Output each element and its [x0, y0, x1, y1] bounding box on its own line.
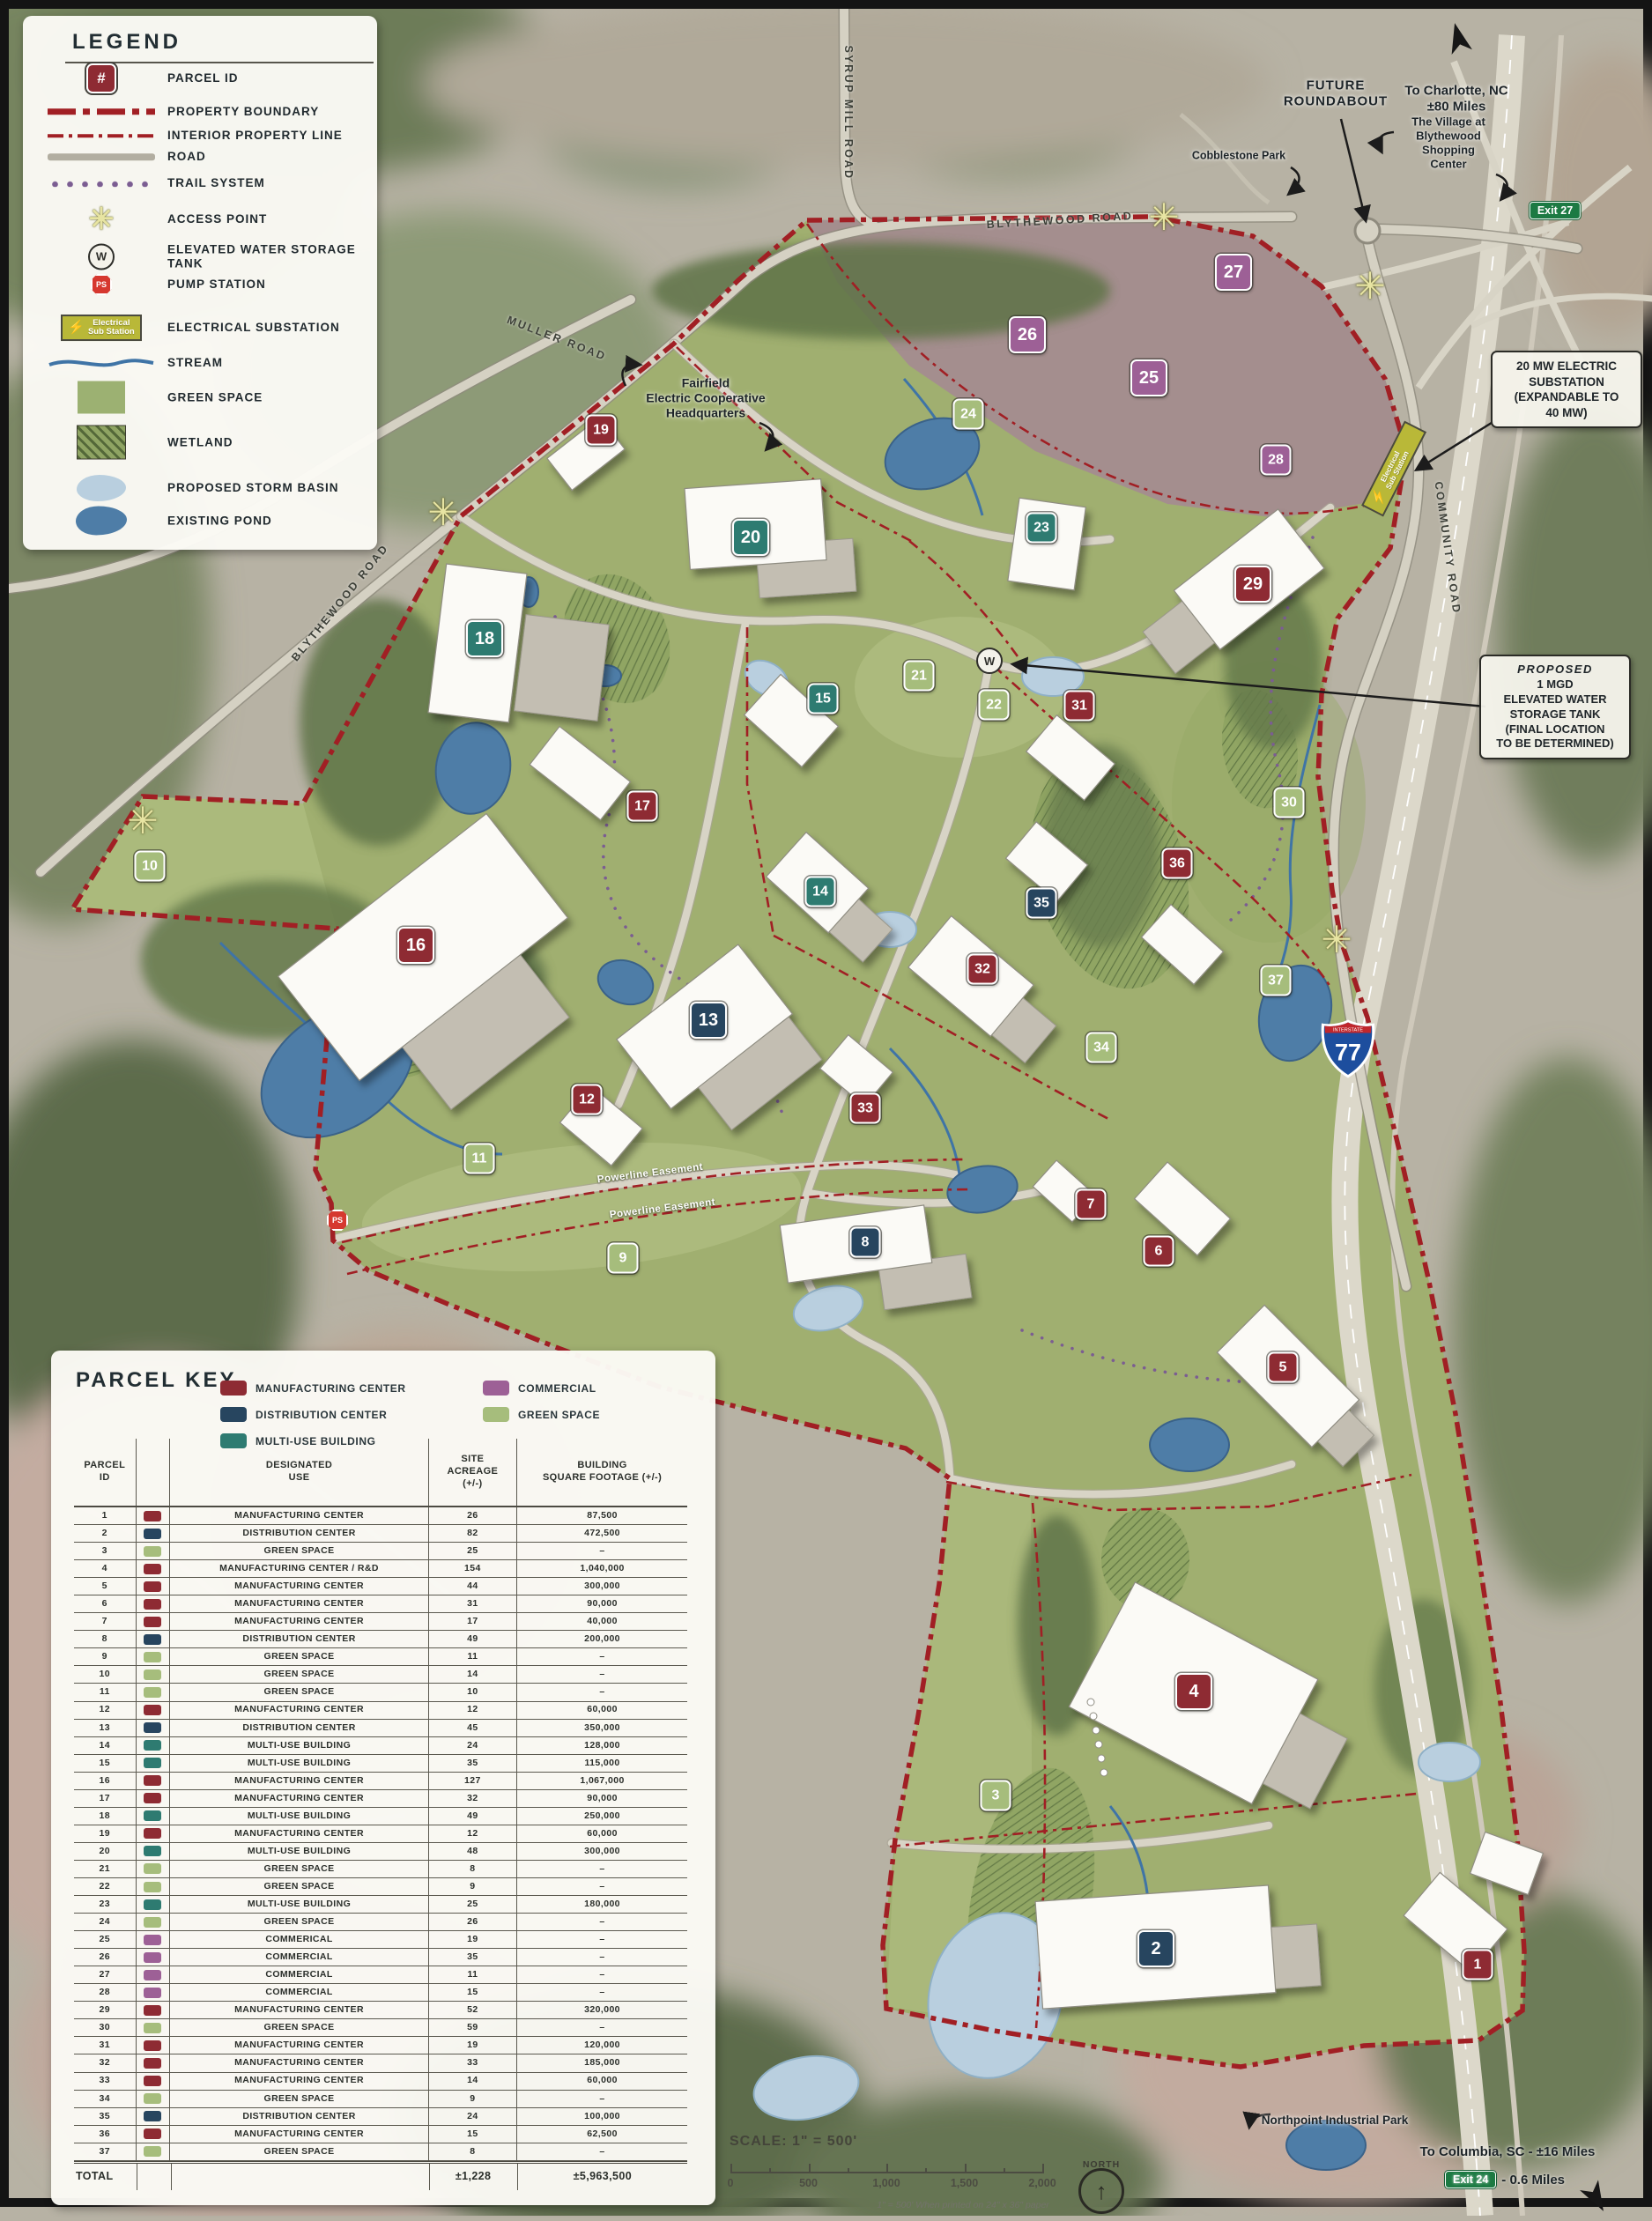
- parcel-row-31: 31MANUFACTURING CENTER19120,000: [74, 2037, 687, 2054]
- table-cell: COMMERCIAL: [170, 1966, 428, 1983]
- legend-item-label: WETLAND: [167, 435, 357, 449]
- table-cell: DESIGNATED USE: [170, 1439, 428, 1506]
- legend-item-wetland-swatch: WETLAND: [35, 426, 370, 460]
- table-cell: 7: [74, 1613, 137, 1630]
- table-cell: 4: [74, 1560, 137, 1577]
- table-header-row: PARCEL IDDESIGNATED USESITE ACREAGE (+/-…: [74, 1439, 687, 1507]
- table-cell: 11: [74, 1684, 137, 1700]
- table-cell: –: [517, 1543, 687, 1559]
- use-type-manufacturing: MANUFACTURING CENTER: [220, 1381, 406, 1396]
- table-cell: MULTI-USE BUILDING: [170, 1737, 428, 1754]
- table-cell: 26: [429, 1507, 517, 1524]
- table-cell: 40,000: [517, 1613, 687, 1630]
- table-cell: –: [517, 1949, 687, 1966]
- table-cell: MANUFACTURING CENTER: [170, 1613, 428, 1630]
- table-cell: 44: [429, 1578, 517, 1595]
- parcel-key-panel: PARCEL KEY MANUFACTURING CENTERDISTRIBUT…: [51, 1351, 715, 2205]
- legend-item-label: ROAD: [167, 150, 357, 164]
- table-cell: 52: [429, 2002, 517, 2018]
- parcel-row-16: 16MANUFACTURING CENTER1271,067,000: [74, 1773, 687, 1790]
- site-master-plan: { "legend": { "title": "LEGEND", "parcel…: [0, 0, 1652, 2207]
- parcel-row-33: 33MANUFACTURING CENTER1460,000: [74, 2073, 687, 2091]
- table-cell: MANUFACTURING CENTER: [170, 2002, 428, 2018]
- table-cell: –: [517, 1914, 687, 1930]
- table-cell: 29: [74, 2002, 137, 2018]
- table-cell: MANUFACTURING CENTER: [170, 1507, 428, 1524]
- table-cell: 19: [429, 1931, 517, 1948]
- table-cell: 127: [429, 1773, 517, 1789]
- village-arrow-left: [1379, 132, 1394, 152]
- table-cell: 33: [74, 2073, 137, 2090]
- table-cell: 62,500: [517, 2126, 687, 2143]
- parcel-row-3: 3GREEN SPACE25–: [74, 1543, 687, 1560]
- legend-item-label: ELEVATED WATER STORAGE TANK: [167, 242, 357, 270]
- table-cell: [137, 1966, 171, 1983]
- table-cell: 36: [74, 2126, 137, 2143]
- table-cell: 87,500: [517, 1507, 687, 1524]
- table-cell: 12: [429, 1825, 517, 1842]
- table-cell: 17: [74, 1790, 137, 1807]
- table-cell: 34: [74, 2091, 137, 2107]
- table-cell: 23: [74, 1896, 137, 1913]
- table-cell: [137, 1984, 171, 2001]
- table-cell: 19: [429, 2037, 517, 2054]
- table-cell: 120,000: [517, 2037, 687, 2054]
- legend-item-label: ACCESS POINT: [167, 212, 357, 226]
- table-cell: 24: [429, 1737, 517, 1754]
- table-cell: [137, 1525, 171, 1542]
- table-cell: COMMERCIAL: [170, 1949, 428, 1966]
- table-cell: 30: [74, 2019, 137, 2036]
- legend-item-label: ELECTRICAL SUBSTATION: [167, 321, 357, 335]
- table-cell: [137, 2108, 171, 2125]
- cobblestone-arrow: [1289, 167, 1300, 194]
- table-cell: 8: [429, 2143, 517, 2160]
- legend-item-electrical-substation-symbol: ⚡ElectricalSub StationELECTRICAL SUBSTAT…: [35, 315, 370, 341]
- table-cell: [137, 1684, 171, 1700]
- table-cell: 11: [429, 1648, 517, 1665]
- table-cell: [137, 1773, 171, 1789]
- table-cell: [137, 1613, 171, 1630]
- table-cell: –: [517, 2091, 687, 2107]
- table-cell: GREEN SPACE: [170, 2143, 428, 2160]
- parcel-row-37: 37GREEN SPACE8–: [74, 2143, 687, 2161]
- table-cell: 19: [74, 1825, 137, 1842]
- table-cell: 26: [74, 1949, 137, 1966]
- table-cell: [137, 1914, 171, 1930]
- table-cell: [137, 2019, 171, 2036]
- table-cell: DISTRIBUTION CENTER: [170, 1525, 428, 1542]
- table-cell: MANUFACTURING CENTER: [170, 1773, 428, 1789]
- legend-item-green-space-swatch: GREEN SPACE: [35, 381, 370, 414]
- table-cell: MULTI-USE BUILDING: [170, 1808, 428, 1825]
- parcel-row-21: 21GREEN SPACE8–: [74, 1861, 687, 1878]
- table-cell: COMMERCIAL: [170, 1984, 428, 2001]
- legend-item-stream-line: STREAM: [35, 356, 370, 370]
- table-cell: 8: [429, 1861, 517, 1877]
- legend-title: LEGEND: [72, 30, 181, 55]
- parcel-row-19: 19MANUFACTURING CENTER1260,000: [74, 1825, 687, 1843]
- table-cell: [137, 1595, 171, 1612]
- legend-item-interior-property-line: INTERIOR PROPERTY LINE: [35, 129, 370, 143]
- table-cell: [137, 1666, 171, 1683]
- table-cell: [137, 1843, 171, 1860]
- parcel-row-12: 12MANUFACTURING CENTER1260,000: [74, 1702, 687, 1720]
- parcel-row-34: 34GREEN SPACE9–: [74, 2091, 687, 2108]
- table-cell: COMMERICAL: [170, 1931, 428, 1948]
- table-cell: 20: [74, 1843, 137, 1860]
- parcel-row-7: 7MANUFACTURING CENTER1740,000: [74, 1613, 687, 1631]
- table-cell: GREEN SPACE: [170, 2091, 428, 2107]
- parcel-row-17: 17MANUFACTURING CENTER3290,000: [74, 1790, 687, 1808]
- future-roundabout-arrow: [1341, 119, 1366, 220]
- parcel-table: PARCEL IDDESIGNATED USESITE ACREAGE (+/-…: [74, 1439, 687, 2190]
- table-cell: MANUFACTURING CENTER: [170, 2126, 428, 2143]
- table-cell: [137, 1790, 171, 1807]
- legend-item-water-tank-symbol: WELEVATED WATER STORAGE TANK: [35, 242, 370, 270]
- table-cell: 180,000: [517, 1896, 687, 1913]
- table-cell: [137, 2164, 172, 2190]
- green-space-swatch: [35, 381, 167, 414]
- legend-item-label: PARCEL ID: [167, 71, 357, 85]
- electrical-substation-symbol: ⚡ElectricalSub Station: [35, 315, 167, 341]
- table-cell: 250,000: [517, 1808, 687, 1825]
- table-cell: –: [517, 1861, 687, 1877]
- legend-item-storm-basin-swatch: PROPOSED STORM BASIN: [35, 475, 370, 501]
- table-cell: 5: [74, 1578, 137, 1595]
- table-cell: 60,000: [517, 2073, 687, 2090]
- table-cell: TOTAL: [74, 2164, 137, 2190]
- table-cell: 13: [74, 1720, 137, 1736]
- table-cell: [137, 1949, 171, 1966]
- table-cell: 25: [429, 1543, 517, 1559]
- parcel-row-11: 11GREEN SPACE10–: [74, 1684, 687, 1701]
- table-cell: [137, 1702, 171, 1719]
- table-cell: 48: [429, 1843, 517, 1860]
- parcel-row-23: 23MULTI-USE BUILDING25180,000: [74, 1896, 687, 1914]
- table-cell: 300,000: [517, 1578, 687, 1595]
- table-cell: 15: [429, 1984, 517, 2001]
- table-cell: [137, 1931, 171, 1948]
- table-cell: GREEN SPACE: [170, 2019, 428, 2036]
- table-cell: 26: [429, 1914, 517, 1930]
- legend-item-pump-station-symbol: PSPUMP STATION: [35, 274, 370, 295]
- access-point-star: ✳: [35, 204, 167, 234]
- use-type-commercial: COMMERCIAL: [483, 1381, 596, 1396]
- legend-item-road-line: ROAD: [35, 150, 370, 164]
- table-cell: 14: [429, 1666, 517, 1683]
- table-cell: [137, 1896, 171, 1913]
- parcel-row-14: 14MULTI-USE BUILDING24128,000: [74, 1737, 687, 1755]
- table-cell: MANUFACTURING CENTER: [170, 1825, 428, 1842]
- table-cell: [137, 2143, 171, 2160]
- table-cell: 18: [74, 1808, 137, 1825]
- table-cell: 1,067,000: [517, 1773, 687, 1789]
- table-cell: ±5,963,500: [518, 2164, 687, 2190]
- table-cell: 154: [429, 1560, 517, 1577]
- table-cell: 35: [74, 2108, 137, 2125]
- parcel-row-26: 26COMMERCIAL35–: [74, 1949, 687, 1966]
- table-cell: [137, 1543, 171, 1559]
- table-cell: GREEN SPACE: [170, 1648, 428, 1665]
- table-cell: [137, 2091, 171, 2107]
- parcel-row-5: 5MANUFACTURING CENTER44300,000: [74, 1578, 687, 1595]
- table-cell: [137, 1507, 171, 1524]
- table-cell: MANUFACTURING CENTER / R&D: [170, 1560, 428, 1577]
- legend-item-label: GREEN SPACE: [167, 390, 357, 404]
- legend-item-label: INTERIOR PROPERTY LINE: [167, 129, 357, 143]
- property-boundary-line: [35, 108, 167, 115]
- table-cell: 15: [429, 2126, 517, 2143]
- table-cell: 31: [429, 1595, 517, 1612]
- table-cell: 3: [74, 1543, 137, 1559]
- table-cell: 22: [74, 1878, 137, 1895]
- parcel-row-29: 29MANUFACTURING CENTER52320,000: [74, 2002, 687, 2019]
- table-cell: [137, 2054, 171, 2071]
- use-type-distribution: DISTRIBUTION CENTER: [220, 1407, 387, 1422]
- table-cell: [137, 1737, 171, 1754]
- table-cell: 14: [429, 2073, 517, 2090]
- table-cell: 45: [429, 1720, 517, 1736]
- stream-line: [35, 356, 167, 370]
- table-cell: 82: [429, 1525, 517, 1542]
- table-cell: DISTRIBUTION CENTER: [170, 1631, 428, 1647]
- parcel-row-20: 20MULTI-USE BUILDING48300,000: [74, 1843, 687, 1861]
- storm-basin-swatch: [35, 475, 167, 501]
- table-cell: 32: [74, 2054, 137, 2071]
- table-cell: [137, 1578, 171, 1595]
- table-cell: 12: [74, 1702, 137, 1719]
- table-cell: 9: [74, 1648, 137, 1665]
- table-cell: GREEN SPACE: [170, 1878, 428, 1895]
- table-cell: [137, 2073, 171, 2090]
- pump-station-symbol: PS: [35, 274, 167, 295]
- legend-item-existing-pond-swatch: EXISTING POND: [35, 507, 370, 536]
- use-type-green: GREEN SPACE: [483, 1407, 600, 1422]
- parcel-row-8: 8DISTRIBUTION CENTER49200,000: [74, 1631, 687, 1648]
- table-cell: 25: [74, 1931, 137, 1948]
- parcel-row-22: 22GREEN SPACE9–: [74, 1878, 687, 1896]
- table-cell: 185,000: [517, 2054, 687, 2071]
- table-cell: 11: [429, 1966, 517, 1983]
- table-cell: –: [517, 2143, 687, 2160]
- table-cell: 1: [74, 1507, 137, 1524]
- table-cell: 200,000: [517, 1631, 687, 1647]
- table-cell: MANUFACTURING CENTER: [170, 1790, 428, 1807]
- parcel-row-24: 24GREEN SPACE26–: [74, 1914, 687, 1931]
- parcel-row-6: 6MANUFACTURING CENTER3190,000: [74, 1595, 687, 1613]
- table-cell: 6: [74, 1595, 137, 1612]
- legend-item-parcel-id-badge: #PARCEL ID: [35, 63, 370, 93]
- parcel-row-13: 13DISTRIBUTION CENTER45350,000: [74, 1720, 687, 1737]
- parcel-row-4: 4MANUFACTURING CENTER / R&D1541,040,000: [74, 1560, 687, 1578]
- table-cell: 90,000: [517, 1595, 687, 1612]
- parcel-row-27: 27COMMERCIAL11–: [74, 1966, 687, 1984]
- table-cell: 128,000: [517, 1737, 687, 1754]
- legend-item-label: PROPOSED STORM BASIN: [167, 481, 357, 495]
- table-cell: 49: [429, 1808, 517, 1825]
- table-cell: 472,500: [517, 1525, 687, 1542]
- table-cell: [137, 1560, 171, 1577]
- parcel-row-1: 1MANUFACTURING CENTER2687,500: [74, 1507, 687, 1525]
- table-cell: GREEN SPACE: [170, 1543, 428, 1559]
- table-cell: 350,000: [517, 1720, 687, 1736]
- parcel-row-2: 2DISTRIBUTION CENTER82472,500: [74, 1525, 687, 1543]
- legend-item-trail-dots: TRAIL SYSTEM: [35, 176, 370, 190]
- trail-dots: [35, 180, 167, 187]
- table-cell: GREEN SPACE: [170, 1914, 428, 1930]
- table-cell: 1,040,000: [517, 1560, 687, 1577]
- table-cell: 32: [429, 1790, 517, 1807]
- table-cell: MANUFACTURING CENTER: [170, 2054, 428, 2071]
- interior-property-line: [35, 134, 167, 137]
- table-cell: 100,000: [517, 2108, 687, 2125]
- table-cell: PARCEL ID: [74, 1439, 137, 1506]
- table-cell: [137, 1878, 171, 1895]
- table-cell: [137, 1439, 171, 1506]
- table-cell: 28: [74, 1984, 137, 2001]
- parcel-row-32: 32MANUFACTURING CENTER33185,000: [74, 2054, 687, 2072]
- table-cell: [137, 2126, 171, 2143]
- table-cell: [137, 2037, 171, 2054]
- table-cell: ±1,228: [430, 2164, 518, 2190]
- table-cell: 49: [429, 1631, 517, 1647]
- table-cell: DISTRIBUTION CENTER: [170, 2108, 428, 2125]
- parcel-row-15: 15MULTI-USE BUILDING35115,000: [74, 1755, 687, 1773]
- table-cell: MANUFACTURING CENTER: [170, 1578, 428, 1595]
- table-cell: 27: [74, 1966, 137, 1983]
- table-cell: [137, 1861, 171, 1877]
- water-tank-symbol: W: [35, 243, 167, 270]
- table-cell: –: [517, 1878, 687, 1895]
- road-line: [35, 153, 167, 160]
- table-total-row: TOTAL±1,228±5,963,500: [74, 2161, 687, 2190]
- parcel-row-18: 18MULTI-USE BUILDING49250,000: [74, 1808, 687, 1825]
- table-cell: 59: [429, 2019, 517, 2036]
- table-cell: [137, 1720, 171, 1736]
- table-cell: 9: [429, 2091, 517, 2107]
- table-cell: –: [517, 1684, 687, 1700]
- table-cell: [172, 2164, 429, 2190]
- table-cell: 320,000: [517, 2002, 687, 2018]
- table-cell: GREEN SPACE: [170, 1861, 428, 1877]
- parcel-key-title: PARCEL KEY: [76, 1368, 236, 1393]
- table-cell: MULTI-USE BUILDING: [170, 1843, 428, 1860]
- table-cell: [137, 1808, 171, 1825]
- legend-panel: LEGEND #PARCEL IDPROPERTY BOUNDARYINTERI…: [23, 16, 377, 550]
- table-cell: –: [517, 1666, 687, 1683]
- table-cell: MANUFACTURING CENTER: [170, 1595, 428, 1612]
- table-cell: MULTI-USE BUILDING: [170, 1755, 428, 1772]
- table-cell: 35: [429, 1755, 517, 1772]
- parcel-row-28: 28COMMERCIAL15–: [74, 1984, 687, 2002]
- table-cell: –: [517, 1984, 687, 2001]
- table-cell: [137, 1631, 171, 1647]
- legend-item-label: PROPERTY BOUNDARY: [167, 105, 357, 119]
- table-cell: 12: [429, 1702, 517, 1719]
- table-cell: 8: [74, 1631, 137, 1647]
- parcel-row-30: 30GREEN SPACE59–: [74, 2019, 687, 2037]
- table-cell: GREEN SPACE: [170, 1666, 428, 1683]
- table-cell: MULTI-USE BUILDING: [170, 1896, 428, 1913]
- table-cell: 24: [74, 1914, 137, 1930]
- table-cell: 24: [429, 2108, 517, 2125]
- table-cell: 10: [429, 1684, 517, 1700]
- table-cell: GREEN SPACE: [170, 1684, 428, 1700]
- table-cell: [137, 1755, 171, 1772]
- table-cell: 31: [74, 2037, 137, 2054]
- table-cell: 90,000: [517, 1790, 687, 1807]
- table-cell: 35: [429, 1949, 517, 1966]
- table-cell: 17: [429, 1613, 517, 1630]
- existing-pond-swatch: [35, 507, 167, 536]
- table-cell: 37: [74, 2143, 137, 2160]
- table-cell: 10: [74, 1666, 137, 1683]
- table-cell: 33: [429, 2054, 517, 2071]
- parcel-row-10: 10GREEN SPACE14–: [74, 1666, 687, 1684]
- table-cell: –: [517, 1966, 687, 1983]
- table-cell: –: [517, 1931, 687, 1948]
- parcel-id-badge: #: [35, 63, 167, 93]
- table-cell: –: [517, 1648, 687, 1665]
- table-cell: –: [517, 2019, 687, 2036]
- legend-item-label: TRAIL SYSTEM: [167, 176, 357, 190]
- wetland-swatch: [35, 426, 167, 460]
- table-cell: [137, 2002, 171, 2018]
- table-cell: DISTRIBUTION CENTER: [170, 1720, 428, 1736]
- parcel-row-9: 9GREEN SPACE11–: [74, 1648, 687, 1666]
- future-roundabout-circle: [1355, 218, 1380, 243]
- table-cell: 14: [74, 1737, 137, 1754]
- table-cell: 25: [429, 1896, 517, 1913]
- table-cell: SITE ACREAGE (+/-): [429, 1439, 517, 1506]
- table-cell: 16: [74, 1773, 137, 1789]
- table-cell: BUILDING SQUARE FOOTAGE (+/-): [517, 1439, 687, 1506]
- legend-item-label: EXISTING POND: [167, 514, 357, 528]
- table-cell: 115,000: [517, 1755, 687, 1772]
- table-cell: 60,000: [517, 1702, 687, 1719]
- parcel-row-25: 25COMMERICAL19–: [74, 1931, 687, 1949]
- table-cell: 2: [74, 1525, 137, 1542]
- legend-item-label: PUMP STATION: [167, 278, 357, 292]
- table-cell: 60,000: [517, 1825, 687, 1842]
- table-cell: 15: [74, 1755, 137, 1772]
- table-cell: 21: [74, 1861, 137, 1877]
- table-cell: MANUFACTURING CENTER: [170, 2037, 428, 2054]
- table-cell: 300,000: [517, 1843, 687, 1860]
- table-cell: [137, 1648, 171, 1665]
- table-cell: [137, 1825, 171, 1842]
- table-cell: MANUFACTURING CENTER: [170, 1702, 428, 1719]
- parcel-row-36: 36MANUFACTURING CENTER1562,500: [74, 2126, 687, 2143]
- legend-item-access-point-star: ✳ACCESS POINT: [35, 204, 370, 234]
- legend-item-label: STREAM: [167, 356, 357, 370]
- table-cell: 9: [429, 1878, 517, 1895]
- table-cell: MANUFACTURING CENTER: [170, 2073, 428, 2090]
- legend-item-property-boundary-line: PROPERTY BOUNDARY: [35, 105, 370, 119]
- parcel-row-35: 35DISTRIBUTION CENTER24100,000: [74, 2108, 687, 2126]
